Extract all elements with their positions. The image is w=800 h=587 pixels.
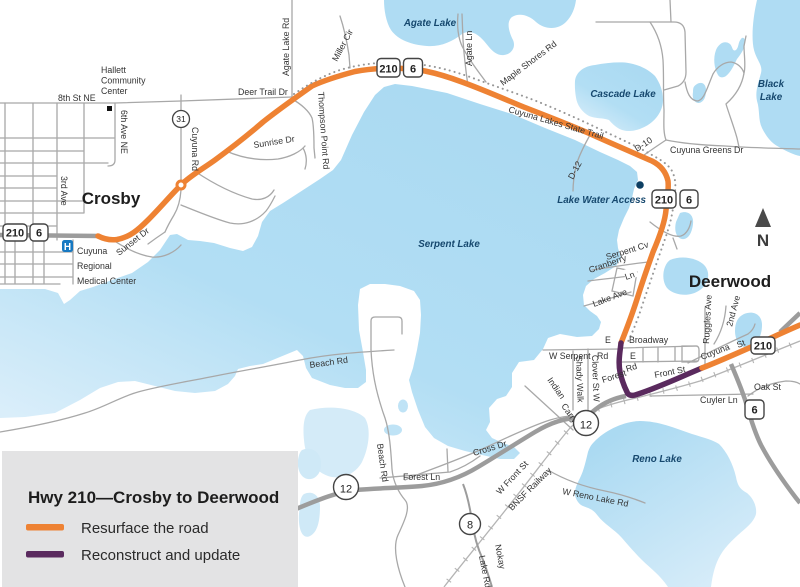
svg-text:210: 210 — [754, 341, 772, 353]
svg-text:6: 6 — [686, 195, 692, 207]
svg-text:Deerwood: Deerwood — [689, 272, 771, 291]
svg-text:Lake: Lake — [760, 92, 783, 103]
svg-text:Reconstruct and update: Reconstruct and update — [81, 547, 240, 564]
svg-text:Regional: Regional — [77, 261, 112, 271]
svg-text:8th St NE: 8th St NE — [58, 93, 96, 103]
svg-text:Cuyuna: Cuyuna — [77, 246, 107, 256]
svg-text:Shady Walk: Shady Walk — [574, 356, 586, 404]
svg-text:Serpent Lake: Serpent Lake — [418, 239, 480, 250]
svg-text:Broadway: Broadway — [629, 335, 669, 345]
svg-text:Community: Community — [101, 76, 146, 86]
svg-text:Black: Black — [758, 79, 785, 90]
svg-text:E: E — [605, 335, 611, 345]
svg-text:6: 6 — [36, 228, 42, 240]
svg-text:Oak St: Oak St — [754, 382, 781, 392]
svg-text:Center: Center — [101, 86, 127, 96]
svg-text:6: 6 — [751, 405, 757, 417]
svg-text:Clover St W: Clover St W — [590, 355, 602, 403]
svg-text:Resurface the road: Resurface the road — [81, 520, 209, 537]
svg-text:12: 12 — [340, 484, 352, 496]
svg-text:210: 210 — [379, 63, 397, 75]
svg-text:Cuyuna Rd: Cuyuna Rd — [190, 127, 200, 171]
svg-text:6th Ave NE: 6th Ave NE — [119, 110, 129, 154]
svg-text:Hwy 210—Crosby to Deerwood: Hwy 210—Crosby to Deerwood — [28, 488, 279, 507]
svg-text:H: H — [64, 242, 71, 253]
svg-text:3rd Ave: 3rd Ave — [59, 176, 69, 206]
svg-text:12: 12 — [580, 420, 592, 432]
svg-text:210: 210 — [6, 228, 24, 240]
svg-text:Cascade Lake: Cascade Lake — [590, 89, 656, 100]
svg-text:Crosby: Crosby — [82, 189, 141, 208]
svg-text:Agate Lake Rd: Agate Lake Rd — [281, 18, 291, 76]
svg-text:6: 6 — [410, 63, 416, 75]
svg-text:Medical Center: Medical Center — [77, 276, 136, 286]
svg-text:Lake Water Access: Lake Water Access — [557, 195, 646, 206]
svg-text:Hallett: Hallett — [101, 65, 126, 75]
svg-text:Cuyuna Greens Dr: Cuyuna Greens Dr — [670, 145, 743, 155]
svg-text:E: E — [630, 351, 636, 361]
svg-text:Deer Trail Dr: Deer Trail Dr — [238, 87, 288, 97]
svg-text:8: 8 — [467, 520, 473, 532]
svg-text:Forest Ln: Forest Ln — [403, 472, 440, 482]
svg-text:Agate Lake: Agate Lake — [403, 18, 457, 29]
svg-text:N: N — [757, 231, 769, 250]
svg-text:Cuyler Ln: Cuyler Ln — [700, 395, 738, 405]
svg-text:Agate Ln: Agate Ln — [464, 31, 474, 66]
svg-text:210: 210 — [655, 195, 673, 207]
svg-text:Reno Lake: Reno Lake — [632, 454, 682, 465]
svg-text:31: 31 — [176, 114, 186, 124]
